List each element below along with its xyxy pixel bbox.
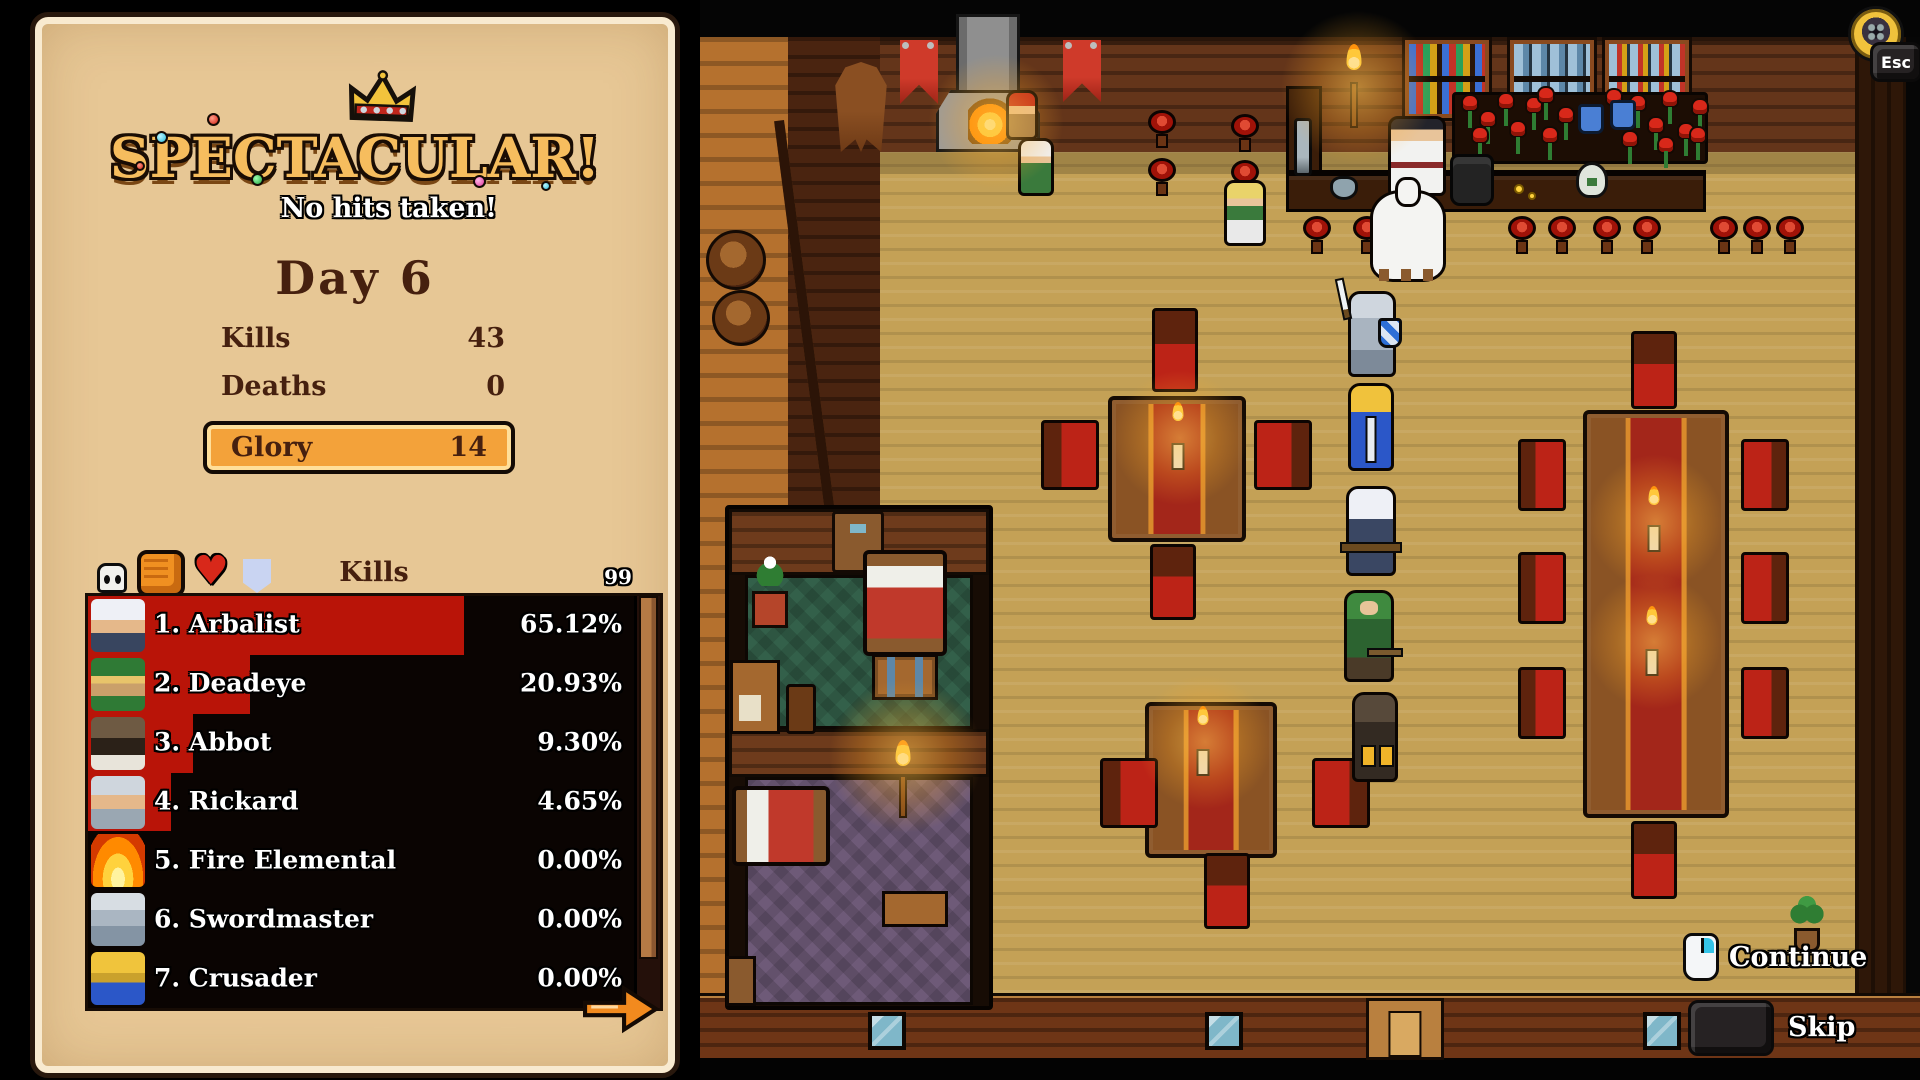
candle: [1189, 706, 1217, 782]
tulip-icon: [1558, 108, 1574, 140]
abbot-unit: [1352, 692, 1398, 782]
stat-row-deaths: Deaths 0: [221, 371, 505, 405]
bar-stool: [1776, 216, 1804, 254]
chair: [1518, 667, 1566, 739]
stat-value: 0: [486, 371, 505, 405]
leaderboard-rank-name: 4. Rickard: [154, 786, 298, 815]
gem-icon: [541, 181, 551, 191]
swordmaster-unit: [1348, 291, 1396, 377]
bed: [732, 786, 830, 866]
chair: [1741, 552, 1789, 624]
window: [1643, 1012, 1681, 1050]
leaderboard-row[interactable]: 7. Crusader0.00%: [88, 949, 634, 1008]
results-panel: SPECTACULAR! No hits taken! Day 6 Kills …: [30, 12, 680, 1078]
bar-stool: [1303, 216, 1331, 254]
candle: [1164, 402, 1192, 476]
bar-stool: [1231, 114, 1259, 152]
chair: [1100, 758, 1158, 828]
continue-prompt[interactable]: Continue: [1683, 930, 1913, 986]
gem-icon: [155, 131, 168, 144]
chair: [1152, 308, 1198, 392]
crate: [726, 956, 756, 1006]
swordmaster-avatar: [91, 893, 145, 946]
barrel: [712, 290, 770, 346]
bar-stool: [1148, 110, 1176, 148]
gem-icon: [473, 175, 486, 188]
leaderboard-row[interactable]: 1. Arbalist65.12%: [88, 596, 634, 655]
barrel: [706, 230, 766, 290]
bar-stool: [1633, 216, 1661, 254]
leaderboard: 1. Arbalist65.12%2. Deadeye20.93%3. Abbo…: [85, 593, 663, 1011]
next-page-arrow-icon[interactable]: [583, 981, 659, 1037]
arbalist-unit: [1346, 486, 1396, 576]
right-wall: [1855, 37, 1920, 1002]
leaderboard-percent: 65.12%: [520, 610, 622, 639]
tulip-icon: [1658, 138, 1674, 168]
flower-pot: [752, 556, 788, 628]
deer-trophy-icon: [833, 62, 889, 152]
tavern-door: [1366, 998, 1444, 1060]
chair: [1741, 667, 1789, 739]
leaderboard-rank-name: 1. Arbalist: [154, 610, 300, 639]
bed: [863, 550, 947, 656]
leaderboard-rank-name: 7. Crusader: [154, 963, 317, 992]
stat-label: Kills: [221, 323, 290, 357]
bar-stool: [1710, 216, 1738, 254]
chair: [1631, 821, 1677, 899]
bar-stool: [1148, 158, 1176, 196]
chair: [1518, 552, 1566, 624]
leaderboard-row[interactable]: 2. Deadeye20.93%: [88, 655, 634, 714]
leaderboard-row[interactable]: 6. Swordmaster0.00%: [88, 890, 634, 949]
tulip-icon: [1538, 88, 1554, 120]
cooking-pot: [1450, 154, 1494, 206]
scene-bottom-border: [700, 1058, 1920, 1080]
patron: [1018, 138, 1054, 196]
tulip-icon: [1690, 128, 1706, 160]
glory-badge: Glory 14: [203, 421, 515, 474]
wall-torch: [1344, 44, 1364, 128]
keyboard-key-icon: [1688, 1000, 1774, 1056]
bar-stool: [1593, 216, 1621, 254]
tulip-icon: [1462, 96, 1478, 128]
leaderboard-percent: 9.30%: [537, 727, 622, 756]
subtitle-banner: No hits taken!: [281, 193, 497, 224]
leaderboard-percent: 0.00%: [537, 904, 622, 933]
tulip-icon: [1662, 92, 1678, 124]
coins: [1528, 192, 1536, 200]
deadeye-avatar: [91, 658, 145, 711]
scene-top-border: [700, 0, 1920, 37]
scrollbar[interactable]: [634, 596, 660, 1008]
window: [1205, 1012, 1243, 1050]
arbalist-avatar: [91, 599, 145, 652]
tulip-icon: [1510, 122, 1526, 154]
logo-text: SPECTACULAR!: [110, 125, 600, 190]
barmaid: [1224, 180, 1266, 246]
leaderboard-percent: 20.93%: [520, 669, 622, 698]
dresser: [882, 891, 948, 927]
continue-label: Continue: [1729, 942, 1867, 973]
stat-value: 43: [467, 323, 505, 357]
chair: [1631, 331, 1677, 409]
leaderboard-row[interactable]: 4. Rickard4.65%: [88, 773, 634, 832]
chair: [1204, 853, 1250, 929]
watering-can: [1578, 104, 1604, 134]
teapot: [1576, 162, 1608, 198]
tulip-icon: [1622, 132, 1638, 164]
wall-torch: [893, 740, 913, 818]
window: [868, 1012, 906, 1050]
leaderboard-row[interactable]: 5. Fire Elemental0.00%: [88, 831, 634, 890]
rickard-avatar: [91, 776, 145, 829]
chair: [1041, 420, 1099, 490]
crown-icon: [342, 68, 422, 131]
stats-block: Kills 43 Deaths 0: [221, 323, 505, 419]
fire-elemental-avatar: [91, 834, 145, 887]
scrollbar-thumb[interactable]: [639, 596, 658, 959]
chair: [1518, 439, 1566, 511]
leaderboard-rows: 1. Arbalist65.12%2. Deadeye20.93%3. Abbo…: [88, 596, 634, 1008]
desk: [730, 660, 780, 734]
stat-label: Deaths: [221, 371, 326, 405]
gem-icon: [207, 113, 220, 126]
crusader-avatar: [91, 952, 145, 1005]
coins: [1514, 184, 1524, 194]
chair: [1150, 544, 1196, 620]
board-max-value: 99: [595, 565, 641, 589]
bar-stool: [1743, 216, 1771, 254]
deadeye-unit: [1344, 590, 1394, 682]
esc-key[interactable]: Esc: [1870, 42, 1920, 82]
candle: [1638, 606, 1666, 682]
stool: [786, 684, 816, 734]
stat-row-kills: Kills 43: [221, 323, 505, 357]
leaderboard-rank-name: 2. Deadeye: [154, 669, 306, 698]
board-metric-label: Kills: [85, 557, 663, 588]
skip-label: Skip: [1788, 1012, 1855, 1043]
skip-prompt[interactable]: Skip: [1688, 1000, 1918, 1060]
leaderboard-rank-name: 5. Fire Elemental: [154, 845, 396, 874]
room-wall: [729, 729, 989, 777]
chest: [872, 654, 938, 700]
gem-icon: [251, 173, 264, 186]
glory-value: 14: [449, 432, 487, 463]
leaderboard-rank-name: 6. Swordmaster: [154, 904, 373, 933]
white-horse: [1370, 190, 1446, 282]
game-screen: { "panel": { "logo": "SPECTACULAR!", "su…: [0, 0, 1920, 1080]
watering-can: [1610, 100, 1636, 130]
leaderboard-rank-name: 3. Abbot: [154, 727, 271, 756]
bar-stool: [1548, 216, 1576, 254]
day-title: Day 6: [35, 251, 675, 305]
leaderboard-row[interactable]: 3. Abbot9.30%: [88, 714, 634, 773]
bar-stool: [1508, 216, 1536, 254]
chair: [1254, 420, 1312, 490]
mouse-icon: [1683, 933, 1719, 981]
beer-tap: [1294, 118, 1312, 176]
glory-label: Glory: [231, 432, 312, 463]
leaderboard-percent: 4.65%: [537, 786, 622, 815]
leaderboard-percent: 0.00%: [537, 845, 622, 874]
tavern-scene: Esc Continue Skip: [700, 0, 1920, 1080]
patron: [1006, 90, 1038, 140]
chair: [1741, 439, 1789, 511]
kettle: [1330, 176, 1358, 200]
gem-icon: [135, 161, 145, 171]
abbot-avatar: [91, 717, 145, 770]
tulip-icon: [1542, 128, 1558, 160]
candle: [1640, 486, 1668, 558]
crusader-unit: [1348, 383, 1394, 471]
